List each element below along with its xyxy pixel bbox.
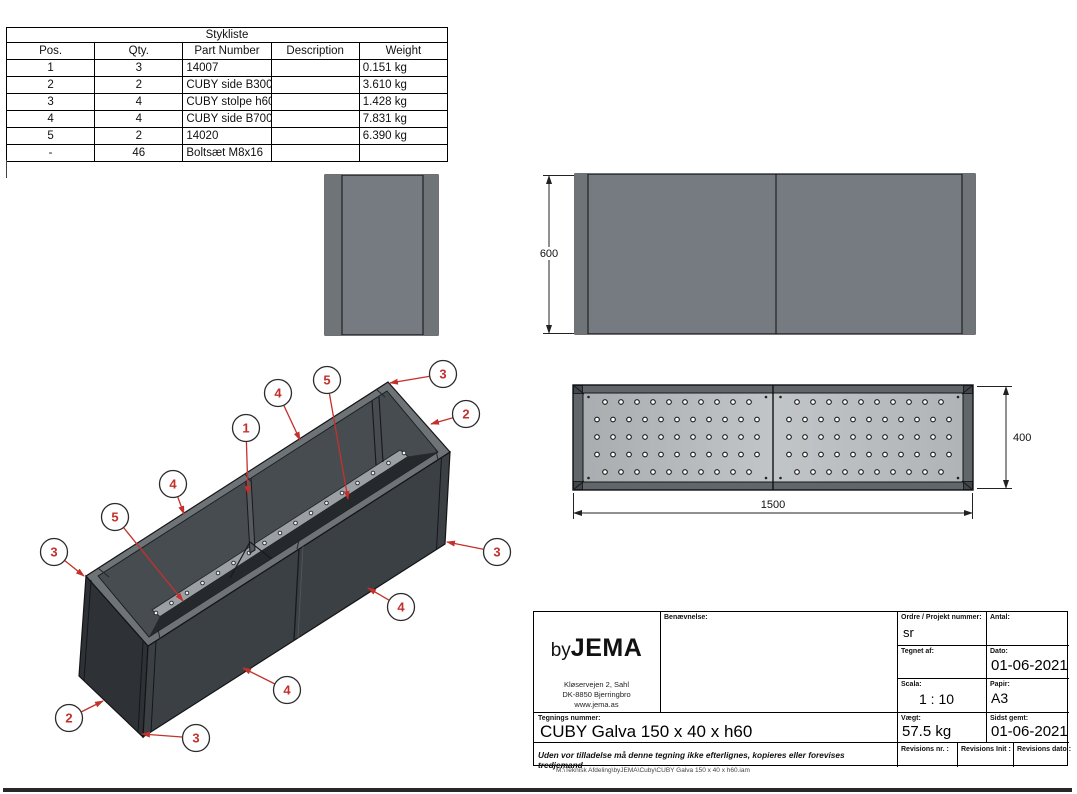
drain-hole [803, 452, 808, 457]
part-cell: 1.428 kg [359, 94, 447, 111]
drain-hole [867, 435, 872, 440]
balloon-number: 2 [65, 711, 72, 726]
value-sidst-gemt: 01-06-2021 [991, 723, 1068, 740]
drain-hole [627, 435, 632, 440]
label-rev-nr: Revisions nr. : [901, 746, 949, 753]
drain-hole [651, 470, 656, 475]
balloon-number: 4 [274, 386, 282, 401]
label-rev-init: Revisions Init : [961, 746, 1011, 753]
label-papir: Papir: [990, 681, 1010, 688]
balloon-number: 3 [192, 731, 199, 746]
drain-hole [859, 400, 864, 405]
drain-hole [947, 452, 952, 457]
part-cell: 0.151 kg [359, 60, 447, 77]
drain-hole [707, 452, 712, 457]
drain-hole [827, 400, 832, 405]
part-cell [271, 94, 359, 111]
part-row: 13140070.151 kg [7, 60, 448, 77]
corner-dot [779, 396, 782, 399]
drain-hole [803, 417, 808, 422]
drain-hole [867, 417, 872, 422]
drain-hole [691, 435, 696, 440]
part-cell: 7.831 kg [359, 111, 447, 128]
drain-hole [731, 470, 736, 475]
part-cell: 6.390 kg [359, 128, 447, 145]
drain-hole [667, 400, 672, 405]
corner-dot [765, 396, 768, 399]
drain-hole [867, 452, 872, 457]
drain-hole [595, 435, 600, 440]
value-vaegt: 57.5 kg [902, 723, 951, 740]
balloon-number: 4 [283, 683, 291, 698]
side-view [575, 174, 975, 334]
part-cell: 4 [7, 111, 95, 128]
drain-hole [731, 400, 736, 405]
part-cell: CUBY stolpe h600 Galva [183, 94, 271, 111]
balloon-leader [284, 406, 300, 440]
part-cell: 1 [7, 60, 95, 77]
balloon-number: 2 [462, 407, 469, 422]
drain-hole [819, 452, 824, 457]
drain-hole [859, 470, 864, 475]
corner-dot [765, 477, 768, 480]
drain-hole [715, 470, 720, 475]
iso-drain-hole [185, 591, 189, 595]
part-cell [271, 60, 359, 77]
iso-drain-hole [356, 481, 360, 485]
part-cell: 46 [95, 145, 183, 162]
drain-hole [923, 470, 928, 475]
drain-hole [843, 470, 848, 475]
iso-drain-hole [371, 471, 375, 475]
part-cell: - [7, 145, 95, 162]
drain-hole [699, 400, 704, 405]
part-cell: 4 [95, 94, 183, 111]
drain-hole [603, 470, 608, 475]
part-cell: 2 [95, 128, 183, 145]
balloon-leader [142, 734, 182, 737]
sheet-bottom-bar [3, 788, 1072, 792]
company-address: Kløservejen 2, Sahl DK-8850 Bjerringbro … [534, 680, 659, 709]
drain-hole [811, 470, 816, 475]
logo-by: by [551, 640, 571, 661]
drain-hole [659, 452, 664, 457]
drain-hole [715, 400, 720, 405]
balloon-number: 4 [397, 600, 405, 615]
drain-hole [883, 435, 888, 440]
balloon-number: 1 [242, 421, 249, 436]
part-cell: 5 [7, 128, 95, 145]
dimension-400: 400 [977, 386, 1031, 489]
iso-drain-hole [402, 451, 406, 455]
column-header-pos: Pos. [7, 43, 95, 60]
drain-hole [603, 400, 608, 405]
parts-table-header: Pos. Qty. Part Number Description Weight [7, 43, 448, 60]
drain-hole [947, 417, 952, 422]
balloon-leader [368, 588, 389, 600]
drain-hole [931, 417, 936, 422]
drain-hole [915, 417, 920, 422]
drain-hole [659, 435, 664, 440]
drain-hole [635, 470, 640, 475]
iso-drain-hole [340, 491, 344, 495]
drain-hole [675, 452, 680, 457]
value-papir: A3 [991, 690, 1008, 706]
address-line: DK-8850 Bjerringbro [534, 690, 659, 700]
drain-hole [819, 417, 824, 422]
drain-hole [891, 400, 896, 405]
drain-hole [723, 417, 728, 422]
drain-hole [675, 417, 680, 422]
drain-hole [915, 435, 920, 440]
part-cell [271, 145, 359, 162]
balloon-leader [178, 497, 184, 514]
drain-hole [819, 435, 824, 440]
part-row: 52140206.390 kg [7, 128, 448, 145]
iso-drain-hole [387, 461, 391, 465]
column-header-desc: Description [271, 43, 359, 60]
drain-hole [939, 470, 944, 475]
drain-hole [787, 417, 792, 422]
drain-hole [843, 400, 848, 405]
drain-hole [907, 400, 912, 405]
part-row: 44CUBY side B700 H600 Galva7.831 kg [7, 111, 448, 128]
drain-hole [627, 452, 632, 457]
balloon-number: 4 [169, 477, 177, 492]
part-cell [271, 128, 359, 145]
drain-hole [939, 400, 944, 405]
drain-hole [683, 470, 688, 475]
iso-drain-hole [154, 611, 158, 615]
drain-hole [683, 400, 688, 405]
drain-hole [787, 435, 792, 440]
part-row: 34CUBY stolpe h600 Galva1.428 kg [7, 94, 448, 111]
drain-hole [643, 435, 648, 440]
drain-hole [667, 470, 672, 475]
balloon-leader [431, 418, 453, 424]
drain-hole [595, 417, 600, 422]
part-cell [359, 145, 447, 162]
part-cell: Boltsæt M8x16 [183, 145, 271, 162]
drain-hole [803, 435, 808, 440]
drain-hole [739, 435, 744, 440]
label-tegnings-nummer: Tegnings nummer: [538, 715, 600, 722]
part-cell: 2 [7, 77, 95, 94]
drain-hole [851, 417, 856, 422]
balloon-number: 5 [323, 373, 330, 388]
iso-drain-hole [309, 511, 313, 515]
column-header-qty: Qty. [95, 43, 183, 60]
address-line: Kløservejen 2, Sahl [534, 680, 659, 690]
drain-hole [675, 435, 680, 440]
drain-hole [851, 452, 856, 457]
drain-hole [723, 435, 728, 440]
part-cell [271, 111, 359, 128]
drain-hole [931, 452, 936, 457]
value-scala: 1 : 10 [919, 691, 954, 707]
drain-hole [899, 417, 904, 422]
corner-dot [957, 477, 960, 480]
file-path: M:\Teknisk Afdeling\byJEMA\Cuby\CUBY Gal… [556, 767, 750, 774]
label-rev-dato: Revisions dato : [1017, 746, 1071, 753]
balloon-callout: 4 [368, 588, 415, 621]
drain-hole [643, 417, 648, 422]
label-sidst-gemt: Sidst gemt: [990, 715, 1028, 722]
drain-hole [787, 452, 792, 457]
drain-hole [835, 452, 840, 457]
part-row: 22CUBY side B300 H600 Galva3.610 kg [7, 77, 448, 94]
drain-hole [811, 400, 816, 405]
front-end-view [325, 175, 438, 335]
parts-table: Stykliste Pos. Qty. Part Number Descript… [6, 27, 448, 162]
top-view [573, 385, 973, 490]
balloon-number: 3 [493, 545, 500, 560]
drain-hole [899, 452, 904, 457]
drain-hole [595, 452, 600, 457]
table-border-extension [6, 160, 7, 178]
label-vaegt: Vægt: [901, 715, 921, 722]
drain-hole [947, 435, 952, 440]
drain-hole [835, 435, 840, 440]
balloon-leader [82, 701, 103, 712]
drain-hole [691, 417, 696, 422]
dimension-600: 600 [537, 175, 574, 334]
balloon-leader [65, 561, 84, 576]
balloon-callout: 4 [160, 471, 187, 515]
balloon-callout: 2 [431, 401, 480, 428]
balloon-callout: 3 [447, 539, 511, 566]
isometric-view [79, 382, 450, 737]
drain-hole [747, 400, 752, 405]
drain-hole [835, 417, 840, 422]
drain-hole [739, 452, 744, 457]
label-benaevnelse: Benævnelse: [664, 614, 708, 621]
iso-drain-hole [325, 501, 329, 505]
drain-hole [611, 452, 616, 457]
drain-hole [627, 417, 632, 422]
part-cell: 3.610 kg [359, 77, 447, 94]
drain-hole [755, 452, 760, 457]
drain-hole [827, 470, 832, 475]
drain-hole [747, 470, 752, 475]
value-dato: 01-06-2021 [991, 657, 1068, 674]
drain-hole [635, 400, 640, 405]
part-cell: 14020 [183, 128, 271, 145]
label-antal: Antal: [990, 614, 1010, 621]
balloon-leader [243, 668, 274, 684]
drain-hole [619, 470, 624, 475]
balloon-callout: 4 [243, 668, 301, 704]
corner-dot [957, 396, 960, 399]
balloon-callout: 2 [56, 701, 104, 732]
corner-dot [587, 477, 590, 480]
drain-hole [723, 452, 728, 457]
iso-drain-hole [216, 571, 220, 575]
part-cell: 3 [95, 60, 183, 77]
dim-label-400: 400 [1013, 432, 1031, 444]
label-ordre: Ordre / Projekt nummer: [901, 614, 982, 621]
drain-hole [899, 435, 904, 440]
drain-hole [643, 452, 648, 457]
drain-hole [611, 435, 616, 440]
column-header-weight: Weight [359, 43, 447, 60]
dim-label-600: 600 [540, 248, 558, 260]
corner-dot [587, 396, 590, 399]
value-tegnet-af: sr [903, 625, 914, 640]
part-cell: 3 [7, 94, 95, 111]
part-cell: 4 [95, 111, 183, 128]
drain-hole [891, 470, 896, 475]
part-cell: 14007 [183, 60, 271, 77]
iso-drain-hole [201, 581, 205, 585]
drain-hole [931, 435, 936, 440]
parts-table-title: Stykliste [7, 28, 448, 43]
balloon-leader [447, 542, 483, 549]
label-dato: Dato: [990, 648, 1008, 655]
balloon-leader [390, 376, 429, 383]
balloon-number: 3 [439, 367, 446, 382]
iso-drain-hole [170, 601, 174, 605]
dimension-1500: 1500 [573, 493, 973, 519]
part-row: -46Boltsæt M8x16 [7, 145, 448, 162]
drain-hole [707, 435, 712, 440]
dim-label-1500: 1500 [761, 499, 785, 511]
balloon-callout: 3 [41, 539, 85, 577]
title-block: byJEMA Kløservejen 2, Sahl DK-8850 Bjerr… [533, 611, 1068, 766]
drain-hole [651, 400, 656, 405]
part-cell: CUBY side B300 H600 Galva [183, 77, 271, 94]
part-cell: CUBY side B700 H600 Galva [183, 111, 271, 128]
drain-hole [875, 400, 880, 405]
iso-drain-hole [278, 531, 282, 535]
part-cell: 2 [95, 77, 183, 94]
drain-hole [851, 435, 856, 440]
iso-drain-hole [232, 561, 236, 565]
drain-hole [795, 400, 800, 405]
balloon-number: 3 [50, 545, 57, 560]
drain-hole [915, 452, 920, 457]
corner-dot [779, 477, 782, 480]
drain-hole [923, 400, 928, 405]
label-scala: Scala: [901, 681, 922, 688]
drain-hole [883, 452, 888, 457]
label-tegnet-af: Tegnet af: [901, 648, 934, 655]
drain-hole [691, 452, 696, 457]
company-logo: byJEMA [534, 634, 659, 663]
drain-hole [755, 417, 760, 422]
drain-hole [795, 470, 800, 475]
iso-drain-hole [294, 521, 298, 525]
drain-hole [907, 470, 912, 475]
balloon-callout: 3 [390, 361, 457, 388]
part-cell [271, 77, 359, 94]
logo-jema: JEMA [571, 634, 642, 662]
drawing-sheet: 600 [0, 0, 1077, 794]
drain-hole [883, 417, 888, 422]
drain-hole [875, 470, 880, 475]
drain-hole [699, 470, 704, 475]
address-line: www.jema.as [534, 700, 659, 710]
drain-hole [707, 417, 712, 422]
balloon-number: 5 [111, 510, 118, 525]
balloon-callout: 4 [265, 380, 301, 441]
drain-hole [619, 400, 624, 405]
column-header-part: Part Number [183, 43, 271, 60]
drain-hole [611, 417, 616, 422]
drain-hole [659, 417, 664, 422]
drain-hole [755, 435, 760, 440]
drain-hole [739, 417, 744, 422]
value-tegnings-nummer: CUBY Galva 150 x 40 x h60 [540, 722, 752, 742]
iso-drain-hole [263, 541, 267, 545]
